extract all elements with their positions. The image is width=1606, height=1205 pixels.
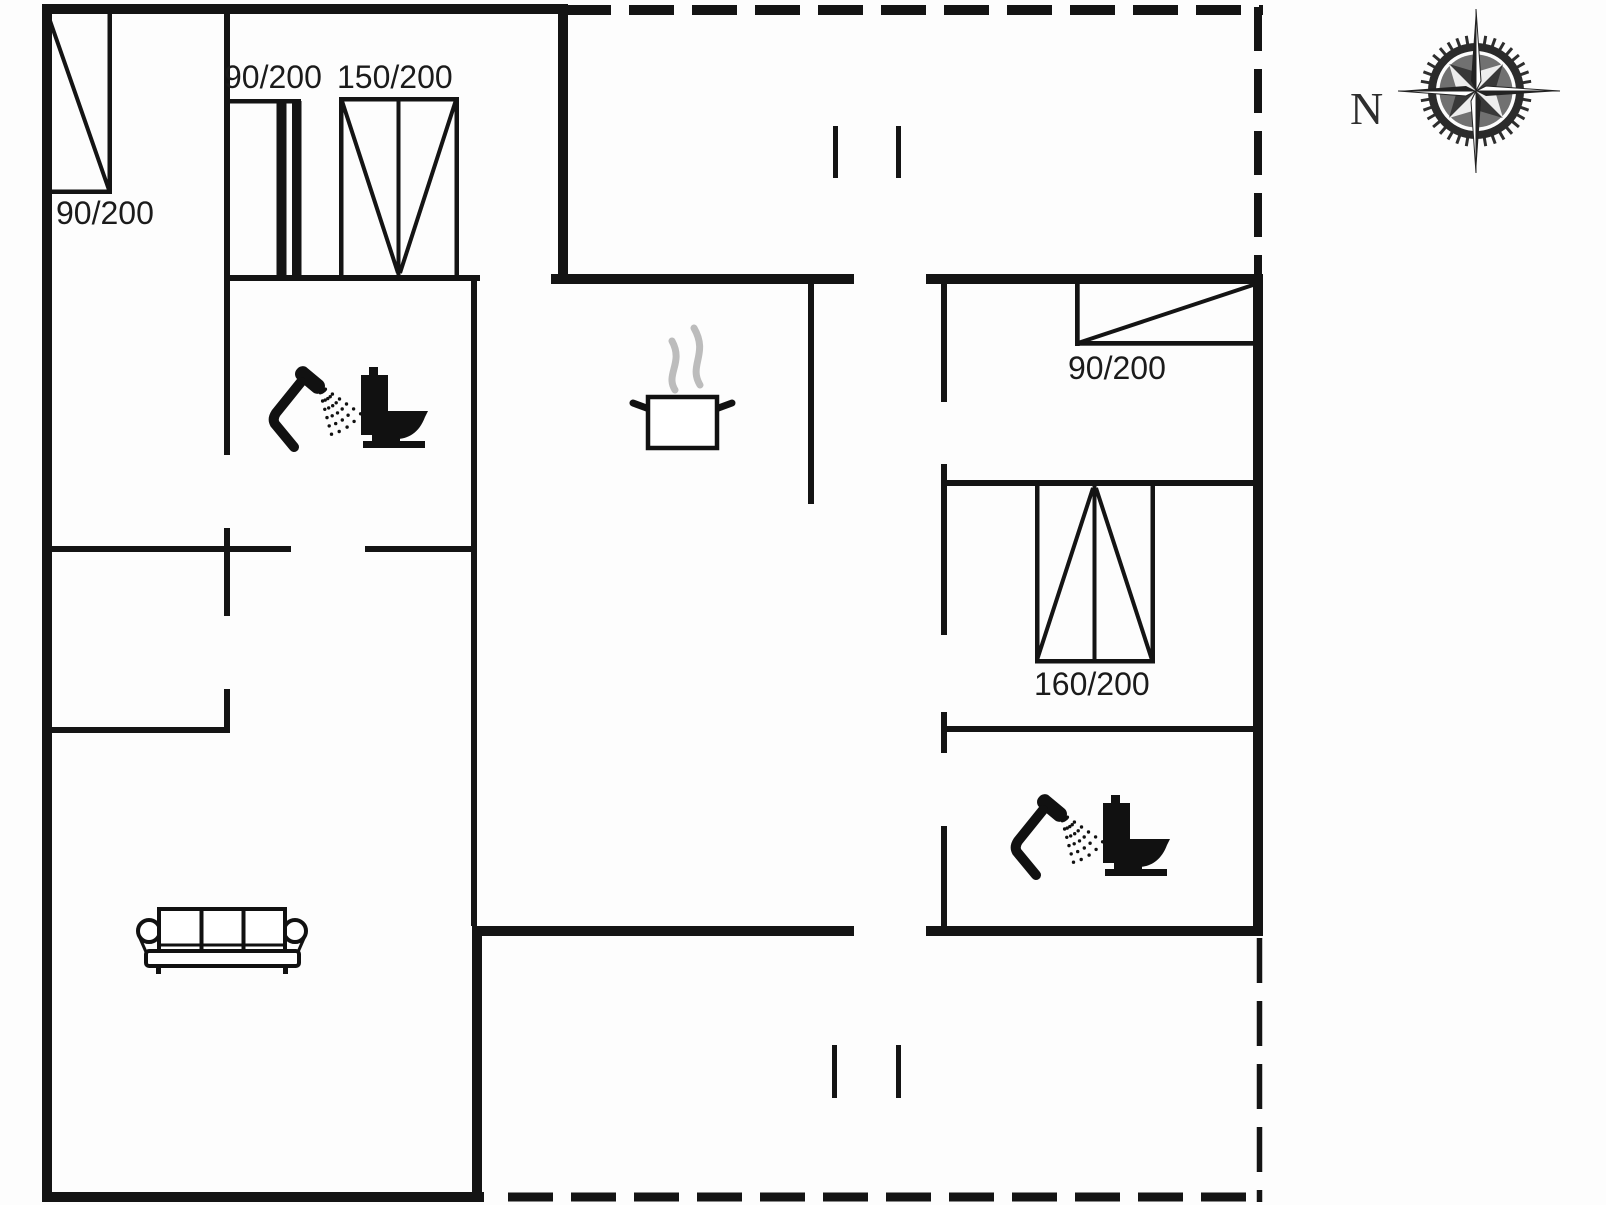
svg-text:150/200: 150/200 — [337, 59, 453, 95]
svg-text:160/200: 160/200 — [1034, 666, 1150, 702]
svg-text:90/200: 90/200 — [1068, 350, 1166, 386]
svg-text:N: N — [1350, 83, 1383, 134]
svg-text:90/200: 90/200 — [56, 195, 154, 231]
svg-text:90/200: 90/200 — [224, 59, 322, 95]
